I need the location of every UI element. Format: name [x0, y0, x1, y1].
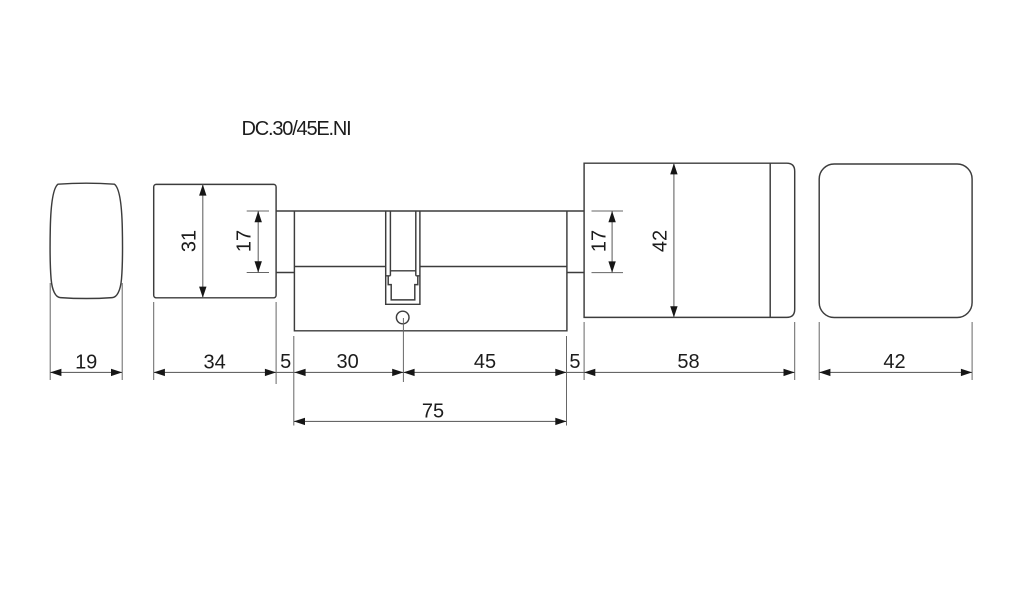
svg-text:5: 5 — [569, 351, 580, 373]
svg-text:30: 30 — [336, 351, 358, 373]
svg-text:19: 19 — [75, 351, 97, 373]
svg-text:DC.30/45E.NI: DC.30/45E.NI — [242, 118, 351, 140]
svg-text:17: 17 — [589, 230, 611, 252]
svg-text:45: 45 — [474, 351, 496, 373]
svg-text:17: 17 — [234, 230, 256, 252]
svg-text:58: 58 — [677, 351, 699, 373]
svg-text:34: 34 — [203, 351, 225, 373]
svg-text:5: 5 — [280, 351, 291, 373]
svg-text:31: 31 — [179, 230, 201, 252]
svg-text:42: 42 — [883, 351, 905, 373]
svg-text:75: 75 — [422, 401, 444, 423]
svg-text:42: 42 — [650, 230, 672, 252]
